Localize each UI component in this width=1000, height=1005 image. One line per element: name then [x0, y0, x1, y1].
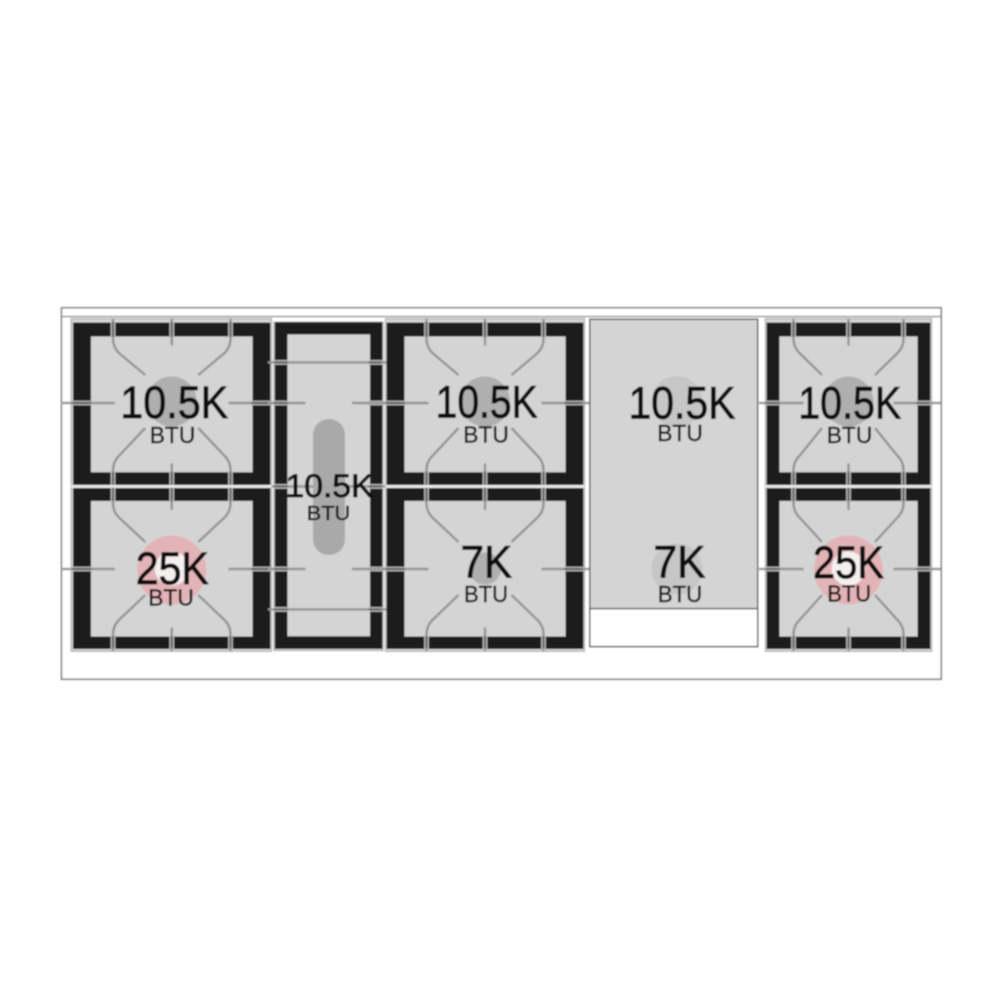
svg-text:7K: 7K — [461, 536, 513, 587]
svg-text:BTU: BTU — [658, 581, 703, 607]
svg-text:BTU: BTU — [827, 580, 871, 606]
svg-text:BTU: BTU — [464, 581, 508, 607]
svg-text:BTU: BTU — [150, 422, 196, 448]
svg-text:BTU: BTU — [148, 584, 194, 610]
svg-text:BTU: BTU — [463, 422, 509, 448]
svg-text:BTU: BTU — [307, 503, 351, 525]
svg-text:7K: 7K — [654, 537, 706, 588]
svg-text:10.5K: 10.5K — [798, 377, 901, 428]
svg-text:10.5K: 10.5K — [120, 377, 228, 428]
svg-text:BTU: BTU — [657, 420, 703, 446]
svg-text:10.5K: 10.5K — [286, 468, 374, 504]
svg-text:10.5K: 10.5K — [436, 376, 538, 427]
svg-text:BTU: BTU — [827, 422, 873, 448]
